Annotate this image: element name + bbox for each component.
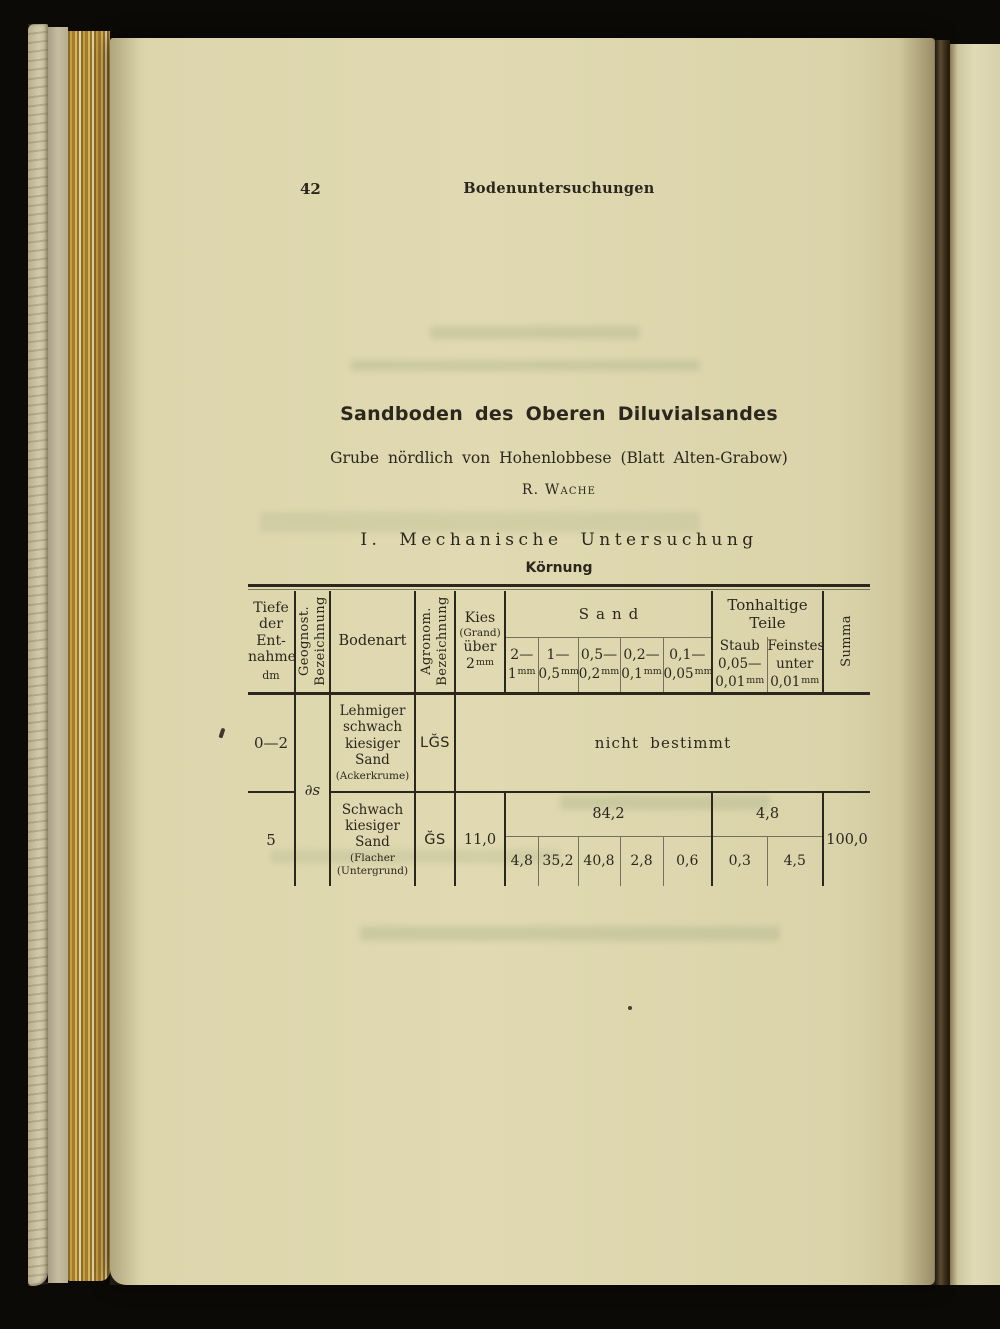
col-header-sand-range-5: 0,1— 0,05mm — [663, 637, 712, 693]
table-top-rule — [248, 584, 870, 587]
gutter-shade — [899, 38, 935, 1285]
col-header-staub: Staub 0,05— 0,01mm — [712, 637, 767, 693]
koernung-table: Tiefe der Ent- nahme dm Geognost. Bezeic… — [248, 591, 870, 886]
col-header-sand-range-3: 0,5— 0,2mm — [578, 637, 620, 693]
adjacent-page-edge — [950, 44, 1000, 1285]
running-head-row: 42 Bodenuntersuchungen — [248, 180, 870, 200]
cell-staub-value: 0,3 — [712, 836, 767, 886]
col-header-sand-range-2: 1— 0,5mm — [538, 637, 578, 693]
col-header-bodenart: Bodenart — [330, 591, 415, 693]
cell-sand-value-2: 35,2 — [538, 836, 578, 886]
col-header-sand-range-4: 0,2— 0,1mm — [620, 637, 663, 693]
col-header-sand-range-1: 2— 1mm — [505, 637, 538, 693]
stray-ink-mark — [219, 728, 226, 739]
cell-agronom-code-row1: LĞS — [415, 693, 455, 792]
cell-bodenart-row2: Schwach kiesiger Sand (Flacher (Untergru… — [330, 792, 415, 886]
section-heading: I. Mechanische Untersuchung — [248, 530, 870, 550]
dust-speck — [628, 1006, 632, 1010]
col-group-sand: Sand — [505, 591, 712, 637]
cell-not-determined: nicht bestimmt — [455, 693, 870, 792]
cell-depth-row1: 0—2 — [248, 693, 295, 792]
cell-tonhaltige-total: 4,8 — [712, 792, 823, 836]
author-name: R. Wache — [248, 482, 870, 498]
running-header: Bodenuntersuchungen — [248, 180, 870, 197]
print-bleed-ghost — [360, 926, 780, 941]
cell-sand-total: 84,2 — [505, 792, 712, 836]
cell-sand-value-4: 2,8 — [620, 836, 663, 886]
col-header-agronom: Agronom. Bezeichnung — [415, 591, 455, 693]
cell-geognost-symbol: ∂s — [295, 693, 330, 886]
print-bleed-ghost — [260, 512, 700, 532]
cell-agronom-code-row2: ĞS — [415, 792, 455, 886]
book-cover-edge — [28, 24, 48, 1286]
spine-shadow — [110, 38, 140, 1285]
col-header-feinstes: Feinstes unter 0,01mm — [767, 637, 823, 693]
cell-sand-value-5: 0,6 — [663, 836, 712, 886]
cell-depth-row2: 5 — [248, 792, 295, 886]
table-caption: Körnung — [248, 560, 870, 576]
cell-feinstes-value: 4,5 — [767, 836, 823, 886]
cell-kies-value: 11,0 — [455, 792, 505, 886]
table-top-rule-thin — [248, 589, 870, 590]
cell-bodenart-row1: Lehmiger schwach kiesiger Sand (Ackerkru… — [330, 693, 415, 792]
col-header-tiefe: Tiefe der Ent- nahme dm — [248, 591, 295, 693]
location-subtitle: Grube nördlich von Hohenlobbese (Blatt A… — [248, 449, 870, 467]
col-group-tonhaltige: Tonhaltige Teile — [712, 591, 823, 637]
scanned-book-photo: 42 Bodenuntersuchungen Sandboden des Obe… — [0, 0, 1000, 1329]
col-header-geognost: Geognost. Bezeichnung — [295, 591, 330, 693]
cell-sand-value-1: 4,8 — [505, 836, 538, 886]
col-header-summa: Summa — [823, 591, 870, 693]
print-bleed-ghost — [350, 360, 700, 371]
book-page: 42 Bodenuntersuchungen Sandboden des Obe… — [110, 38, 935, 1285]
book-binding-edge — [48, 27, 68, 1283]
page-edge-stripes — [68, 31, 110, 1281]
page-title: Sandboden des Oberen Diluvialsandes — [248, 403, 870, 425]
print-bleed-ghost — [430, 326, 640, 339]
grain-size-table-wrap: Tiefe der Ent- nahme dm Geognost. Bezeic… — [248, 584, 870, 886]
cell-summa-value: 100,0 — [823, 792, 870, 886]
page-number: 42 — [300, 180, 321, 198]
cell-sand-value-3: 40,8 — [578, 836, 620, 886]
col-header-kies: Kies (Grand) über 2mm — [455, 591, 505, 693]
gutter-shadow — [933, 40, 950, 1285]
